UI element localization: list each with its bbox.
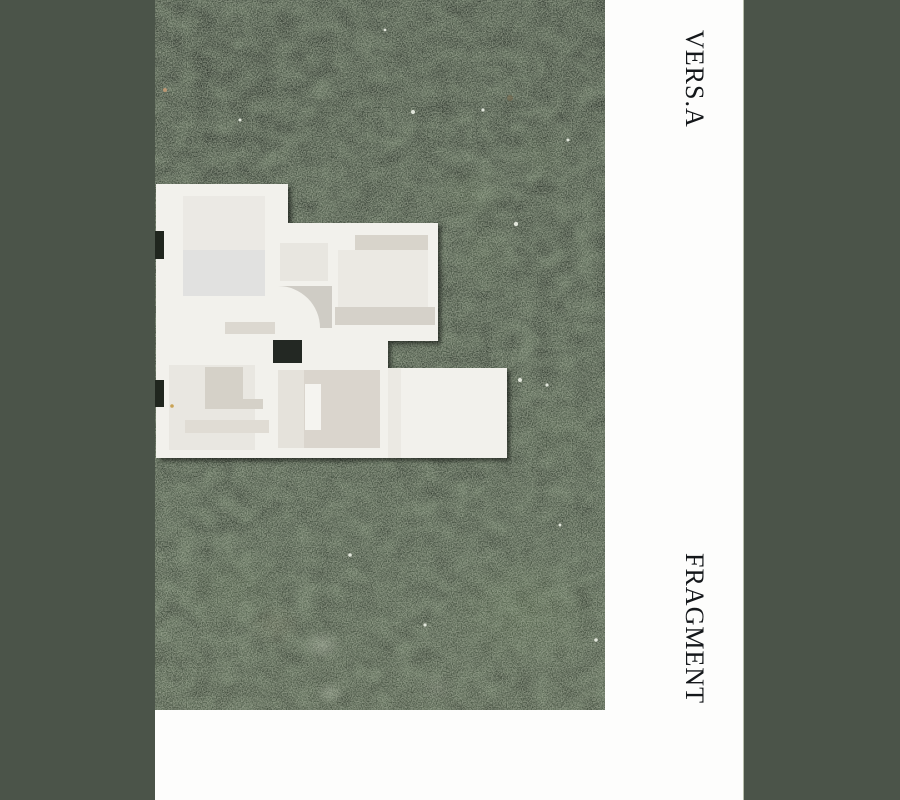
architectural-model — [155, 0, 605, 710]
cover-frame: VERS.A FRAGMENT — [0, 0, 900, 800]
masthead-vertical-text: VERS.A — [679, 30, 709, 128]
model-speck — [170, 404, 174, 408]
cover-page: VERS.A FRAGMENT — [155, 0, 744, 800]
title-vertical-text: FRAGMENT — [679, 553, 709, 704]
model-notch — [155, 380, 164, 407]
model-photograph — [155, 0, 605, 710]
model-notch — [155, 231, 164, 259]
model-void — [273, 340, 302, 363]
